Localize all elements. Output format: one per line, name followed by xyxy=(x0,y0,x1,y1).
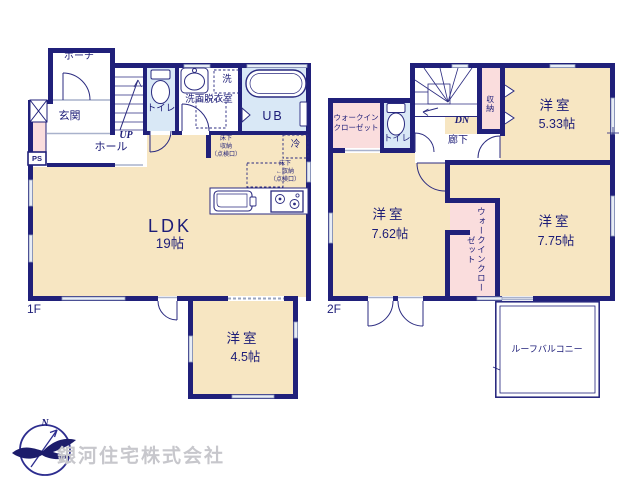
room-label-hall: ホール xyxy=(79,141,143,154)
room-label-entrance: 玄関 xyxy=(42,110,97,123)
floor2-label: 2F xyxy=(327,302,357,316)
stairs-up-label: UP xyxy=(112,130,140,142)
room-size-bedroom-775: 7.75帖 xyxy=(515,234,597,249)
walkin-closet-top-label: ウォークイン クローゼット xyxy=(331,113,381,133)
room-label-bedroom-762: 洋室 xyxy=(349,207,429,223)
room-size-bedroom-45: 4.5帖 xyxy=(203,350,288,365)
room-size-bedroom-762: 7.62帖 xyxy=(349,227,431,242)
compass-north-label: N xyxy=(37,418,53,430)
balcony-label: ルーフバルコニー xyxy=(497,344,597,355)
fridge-label: 冷 xyxy=(283,139,308,150)
washbasin-fixture xyxy=(181,68,208,93)
floor-plan: ポーチ 玄関 ホール UP PS トイレ 洗面脱衣室 洗 UB 冷 床下 収納 … xyxy=(0,0,640,480)
toilet-fixture-1f xyxy=(151,70,170,104)
room-label-washroom: 洗面脱衣室 xyxy=(176,94,242,105)
room-label-porch: ポーチ xyxy=(48,51,110,63)
underfloor-storage-label-2: 床下 ←収納 （点検口） xyxy=(260,161,310,184)
pipe-space-label: PS xyxy=(28,154,46,163)
stairs-down-label: DN xyxy=(448,115,476,127)
room-label-unit-bath: UB xyxy=(252,109,294,124)
floor1-label: 1F xyxy=(27,302,57,316)
underfloor-storage-label-1: 床下 収納 （点検口） xyxy=(202,136,250,159)
kitchen-counter xyxy=(210,188,308,214)
corridor-label: 廊下 xyxy=(440,135,476,147)
room-size-bedroom-533: 5.33帖 xyxy=(516,117,598,132)
closet-label: 収納 xyxy=(485,83,495,125)
room-size-ldk: 19帖 xyxy=(128,236,212,252)
room-label-ldk: LDK xyxy=(128,216,212,238)
room-label-bedroom-775: 洋室 xyxy=(515,214,595,230)
walkin-closet-mid-label: ウォークインクローゼット xyxy=(466,203,486,297)
room-label-toilet-1f: トイレ xyxy=(142,103,180,114)
room-label-toilet-2f: トイレ xyxy=(383,133,411,144)
company-name: 銀河住宅株式会社 xyxy=(57,446,377,469)
washer-label: 洗 xyxy=(214,74,240,85)
room-label-bedroom-45: 洋室 xyxy=(203,331,283,347)
toilet-fixture-2f xyxy=(387,104,405,136)
room-label-bedroom-533: 洋室 xyxy=(516,98,596,114)
